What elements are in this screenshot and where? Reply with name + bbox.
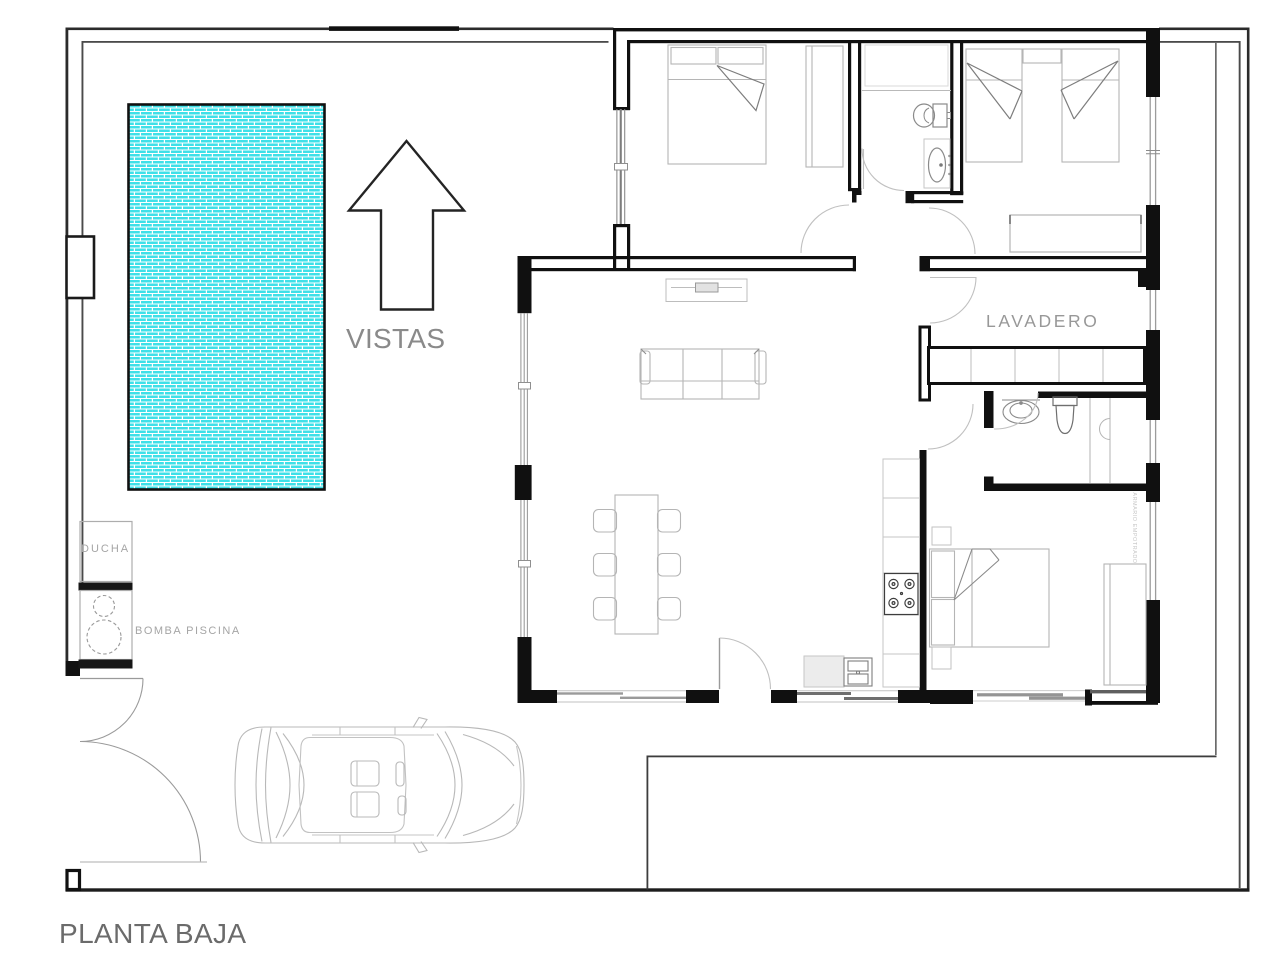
svg-text:PLANTA BAJA: PLANTA BAJA (59, 918, 247, 949)
svg-text:ARMARIO EMPOTRADO: ARMARIO EMPOTRADO (1131, 492, 1137, 563)
svg-text:BOMBA PISCINA: BOMBA PISCINA (135, 625, 241, 637)
svg-text:DUCHA: DUCHA (81, 543, 130, 555)
svg-text:VISTAS: VISTAS (346, 323, 445, 354)
svg-text:LAVADERO: LAVADERO (986, 311, 1100, 331)
